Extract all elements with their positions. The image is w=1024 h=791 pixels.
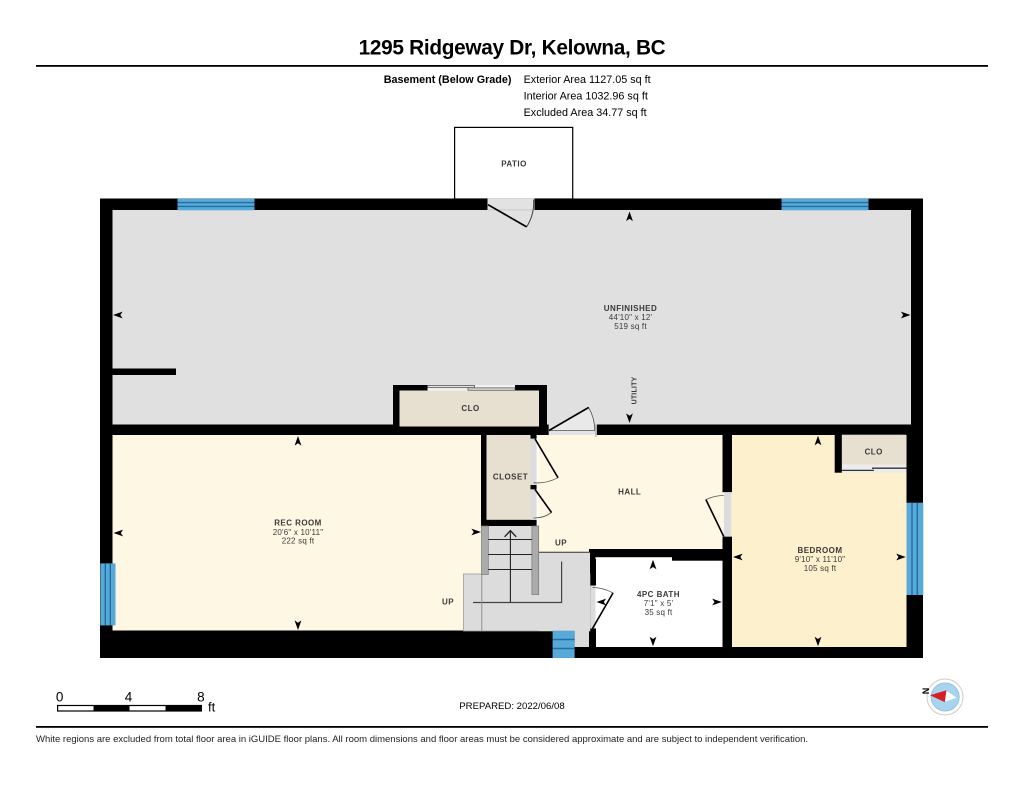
svg-text:CLO: CLO bbox=[461, 404, 479, 413]
svg-text:9'10" x 11'10": 9'10" x 11'10" bbox=[795, 555, 846, 564]
svg-text:HALL: HALL bbox=[618, 488, 641, 497]
svg-text:Basement (Below Grade): Basement (Below Grade) bbox=[384, 74, 512, 86]
svg-text:White regions are excluded fro: White regions are excluded from total fl… bbox=[36, 734, 808, 745]
svg-text:REC ROOM: REC ROOM bbox=[274, 519, 322, 528]
svg-text:35 sq ft: 35 sq ft bbox=[645, 608, 673, 617]
svg-text:20'6" x 10'11": 20'6" x 10'11" bbox=[273, 528, 324, 537]
svg-text:8: 8 bbox=[197, 690, 205, 705]
svg-text:Excluded Area 34.77 sq ft: Excluded Area 34.77 sq ft bbox=[524, 107, 647, 119]
svg-text:PATIO: PATIO bbox=[501, 160, 527, 169]
svg-text:4PC BATH: 4PC BATH bbox=[637, 590, 680, 599]
svg-text:Interior Area 1032.96 sq ft: Interior Area 1032.96 sq ft bbox=[524, 91, 648, 103]
svg-text:ft: ft bbox=[208, 700, 216, 715]
svg-text:105 sq ft: 105 sq ft bbox=[804, 564, 837, 573]
svg-text:0: 0 bbox=[56, 690, 64, 705]
svg-text:222 sq ft: 222 sq ft bbox=[282, 537, 315, 546]
svg-text:4: 4 bbox=[125, 690, 133, 705]
svg-text:CLO: CLO bbox=[865, 448, 883, 457]
svg-text:UNFINISHED: UNFINISHED bbox=[604, 304, 657, 313]
svg-text:N: N bbox=[921, 688, 931, 695]
svg-text:PREPARED: 2022/06/08: PREPARED: 2022/06/08 bbox=[459, 701, 564, 712]
svg-text:519 sq ft: 519 sq ft bbox=[614, 322, 647, 331]
svg-text:UTILITY: UTILITY bbox=[632, 376, 639, 404]
svg-text:UP: UP bbox=[442, 598, 454, 607]
svg-text:BEDROOM: BEDROOM bbox=[798, 546, 843, 555]
svg-text:7'1" x 5': 7'1" x 5' bbox=[644, 599, 674, 608]
svg-text:UP: UP bbox=[555, 539, 567, 548]
svg-text:CLOSET: CLOSET bbox=[493, 473, 528, 482]
svg-text:1295 Ridgeway Dr, Kelowna, BC: 1295 Ridgeway Dr, Kelowna, BC bbox=[359, 37, 666, 60]
svg-text:Exterior Area 1127.05 sq ft: Exterior Area 1127.05 sq ft bbox=[524, 74, 651, 86]
